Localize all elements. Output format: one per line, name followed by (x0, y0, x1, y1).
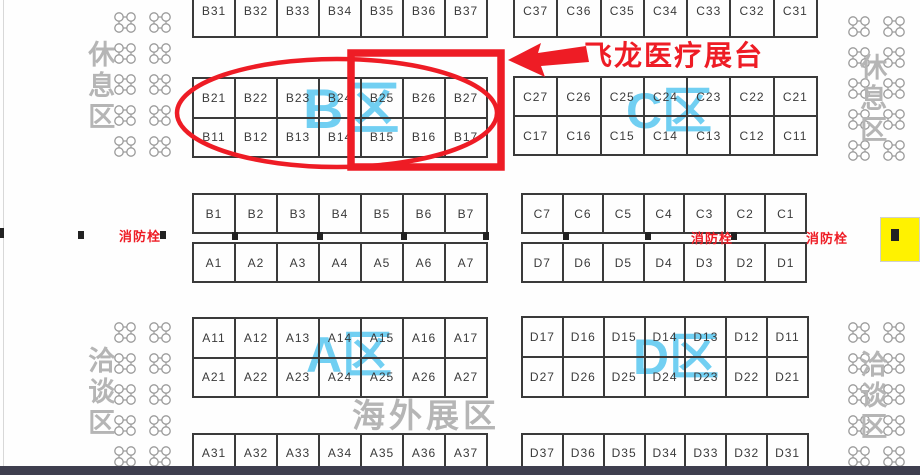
seating-group-bottom-left (113, 322, 172, 468)
booth-cell-B25: B25 (360, 79, 402, 117)
booth-cell-A21: A21 (194, 359, 234, 397)
booth-cell-C27: C27 (515, 78, 556, 115)
table-seating-icon (148, 415, 172, 437)
table-seating-icon (113, 415, 137, 437)
table-seating-icon (148, 105, 172, 127)
table-seating-icon (882, 16, 906, 38)
booth-cell-B13: B13 (276, 119, 318, 157)
talk-area-label-left: 洽谈区 (84, 346, 114, 439)
booth-cell-A23: A23 (276, 359, 318, 397)
fire-hydrant-label-center: 消防栓 (691, 232, 733, 245)
booth-block-c-front: C7C6C5C4C3C2C1 (521, 193, 807, 234)
booth-cell-D22: D22 (725, 358, 766, 396)
overseas-area-label: 海外展区 (352, 399, 500, 432)
booth-cell-B12: B12 (234, 119, 276, 157)
table-seating-icon (148, 12, 172, 34)
table-seating-icon (882, 322, 906, 344)
booth-cell-D17: D17 (523, 318, 562, 356)
table-seating-icon (847, 322, 871, 344)
booth-cell-C14: C14 (643, 117, 686, 154)
booth-block-d-front: D7D6D5D4D3D2D1 (521, 242, 807, 283)
booth-cell-D7: D7 (523, 244, 562, 281)
booth-cell-A1: A1 (194, 244, 234, 281)
booth-cell-C21: C21 (773, 78, 816, 115)
fire-hydrant-label-left: 消防栓 (119, 230, 161, 243)
booth-cell-D16: D16 (562, 318, 603, 356)
table-seating-icon (882, 446, 906, 468)
booth-cell-A25: A25 (360, 359, 402, 397)
booth-cell-A27: A27 (444, 359, 486, 397)
booth-cell-A12: A12 (234, 319, 276, 357)
booth-cell-C36: C36 (556, 0, 599, 36)
pillar-marker (401, 232, 407, 240)
booth-cell-C16: C16 (556, 117, 599, 154)
booth-cell-B21: B21 (194, 79, 234, 117)
booth-cell-B23: B23 (276, 79, 318, 117)
booth-cell-A14: A14 (318, 319, 360, 357)
booth-cell-B32: B32 (234, 0, 276, 36)
callout-company-label: 飞龙医疗展台 (584, 42, 764, 70)
booth-cell-B7: B7 (444, 195, 486, 232)
booth-cell-B15: B15 (360, 119, 402, 157)
table-seating-icon (148, 446, 172, 468)
booth-cell-A2: A2 (234, 244, 276, 281)
booth-cell-B5: B5 (360, 195, 402, 232)
seating-group-top-left (113, 12, 172, 158)
table-seating-icon (148, 384, 172, 406)
booth-cell-B35: B35 (360, 0, 402, 36)
booth-cell-C37: C37 (515, 0, 556, 36)
table-seating-icon (148, 43, 172, 65)
rest-area-label-right: 休息区 (856, 53, 886, 146)
booth-cell-A4: A4 (318, 244, 360, 281)
booth-cell-B1: B1 (194, 195, 234, 232)
rest-area-label-left: 休息区 (84, 40, 114, 133)
booth-cell-C15: C15 (600, 117, 643, 154)
fire-hydrant-label-right: 消防栓 (806, 232, 848, 245)
booth-block-b30s: B31B32B33B34B35B36B37 (192, 0, 488, 38)
booth-cell-D6: D6 (562, 244, 603, 281)
booth-cell-C23: C23 (686, 78, 729, 115)
booth-cell-D12: D12 (725, 318, 766, 356)
booth-cell-D15: D15 (603, 318, 644, 356)
booth-cell-B31: B31 (194, 0, 234, 36)
exit-marker-yellow (880, 217, 920, 262)
table-seating-icon (113, 136, 137, 158)
booth-cell-A11: A11 (194, 319, 234, 357)
booth-cell-C11: C11 (773, 117, 816, 154)
booth-cell-C34: C34 (643, 0, 686, 36)
booth-cell-B24: B24 (318, 79, 360, 117)
booth-cell-B17: B17 (444, 119, 486, 157)
booth-cell-C4: C4 (643, 195, 684, 232)
booth-cell-C5: C5 (602, 195, 643, 232)
booth-cell-D26: D26 (562, 358, 603, 396)
booth-cell-B34: B34 (318, 0, 360, 36)
booth-cell-C13: C13 (686, 117, 729, 154)
booth-cell-C1: C1 (764, 195, 805, 232)
booth-cell-B33: B33 (276, 0, 318, 36)
booth-cell-A15: A15 (360, 319, 402, 357)
hall-bottom-wall (0, 466, 920, 475)
booth-cell-B3: B3 (276, 195, 318, 232)
booth-cell-D11: D11 (766, 318, 807, 356)
booth-cell-C25: C25 (600, 78, 643, 115)
table-seating-icon (113, 105, 137, 127)
booth-cell-A13: A13 (276, 319, 318, 357)
callout-arrow-icon (508, 43, 589, 77)
pillar-marker (317, 232, 323, 240)
booth-cell-C35: C35 (600, 0, 643, 36)
booth-block-b20s-b10s: B21B22B23B24B25B26B27 B11B12B13B14B15B16… (192, 77, 488, 158)
booth-cell-B4: B4 (318, 195, 360, 232)
booth-cell-D24: D24 (644, 358, 685, 396)
booth-cell-B11: B11 (194, 119, 234, 157)
table-seating-icon (113, 43, 137, 65)
booth-cell-D25: D25 (603, 358, 644, 396)
pillar-marker (78, 231, 84, 239)
booth-cell-D4: D4 (643, 244, 684, 281)
booth-cell-A26: A26 (402, 359, 444, 397)
booth-cell-D3: D3 (683, 244, 724, 281)
pillar-marker (645, 232, 651, 240)
booth-cell-A7: A7 (444, 244, 486, 281)
exhibition-floor-plan: 休息区 休息区 洽谈区 洽谈区 海外展区 B区 C区 A区 D区 B31B32B… (0, 0, 920, 475)
booth-cell-D1: D1 (764, 244, 805, 281)
table-seating-icon (148, 353, 172, 375)
table-seating-icon (113, 446, 137, 468)
booth-cell-C32: C32 (729, 0, 772, 36)
table-seating-icon (113, 74, 137, 96)
booth-cell-A6: A6 (402, 244, 444, 281)
table-seating-icon (113, 322, 137, 344)
pillar-marker (232, 232, 238, 240)
booth-cell-C2: C2 (724, 195, 765, 232)
booth-cell-D13: D13 (684, 318, 725, 356)
booth-cell-C24: C24 (643, 78, 686, 115)
booth-block-c30s: C37C36C35C34C33C32C31 (513, 0, 818, 38)
booth-block-d10s-d20s: D17D16D15D14D13D12D11 D27D26D25D24D23D22… (521, 316, 809, 398)
booth-cell-C17: C17 (515, 117, 556, 154)
booth-cell-B14: B14 (318, 119, 360, 157)
booth-cell-D23: D23 (684, 358, 725, 396)
talk-area-label-right: 洽谈区 (856, 350, 886, 443)
table-seating-icon (847, 446, 871, 468)
exit-door-icon (891, 229, 899, 241)
booth-cell-B6: B6 (402, 195, 444, 232)
booth-cell-D27: D27 (523, 358, 562, 396)
pillar-marker (0, 228, 4, 238)
booth-cell-C22: C22 (729, 78, 772, 115)
table-seating-icon (113, 353, 137, 375)
booth-cell-C7: C7 (523, 195, 562, 232)
booth-cell-B22: B22 (234, 79, 276, 117)
booth-block-a10s-a20s: A11A12A13A14A15A16A17 A21A22A23A24A25A26… (192, 317, 488, 398)
booth-cell-D2: D2 (724, 244, 765, 281)
pillar-marker (483, 232, 489, 240)
booth-block-c20s-c10s: C27C26C25C24C23C22C21 C17C16C15C14C13C12… (513, 76, 818, 156)
booth-cell-B36: B36 (402, 0, 444, 36)
pillar-marker (563, 232, 569, 240)
booth-cell-A17: A17 (444, 319, 486, 357)
booth-block-a-front: A1A2A3A4A5A6A7 (192, 242, 488, 283)
booth-cell-C26: C26 (556, 78, 599, 115)
booth-cell-A16: A16 (402, 319, 444, 357)
booth-cell-B16: B16 (402, 119, 444, 157)
booth-cell-C31: C31 (773, 0, 816, 36)
booth-cell-D21: D21 (766, 358, 807, 396)
table-seating-icon (847, 16, 871, 38)
booth-cell-B27: B27 (444, 79, 486, 117)
booth-cell-A22: A22 (234, 359, 276, 397)
booth-cell-D14: D14 (644, 318, 685, 356)
table-seating-icon (148, 74, 172, 96)
booth-cell-B2: B2 (234, 195, 276, 232)
booth-cell-B37: B37 (444, 0, 486, 36)
booth-cell-D5: D5 (602, 244, 643, 281)
table-seating-icon (148, 136, 172, 158)
booth-cell-A5: A5 (360, 244, 402, 281)
booth-cell-C33: C33 (686, 0, 729, 36)
booth-block-b-front: B1B2B3B4B5B6B7 (192, 193, 488, 234)
booth-cell-C3: C3 (683, 195, 724, 232)
table-seating-icon (148, 322, 172, 344)
booth-cell-A24: A24 (318, 359, 360, 397)
table-seating-icon (113, 12, 137, 34)
booth-cell-C12: C12 (729, 117, 772, 154)
table-seating-icon (113, 384, 137, 406)
booth-cell-C6: C6 (562, 195, 603, 232)
booth-cell-A3: A3 (276, 244, 318, 281)
booth-cell-B26: B26 (402, 79, 444, 117)
